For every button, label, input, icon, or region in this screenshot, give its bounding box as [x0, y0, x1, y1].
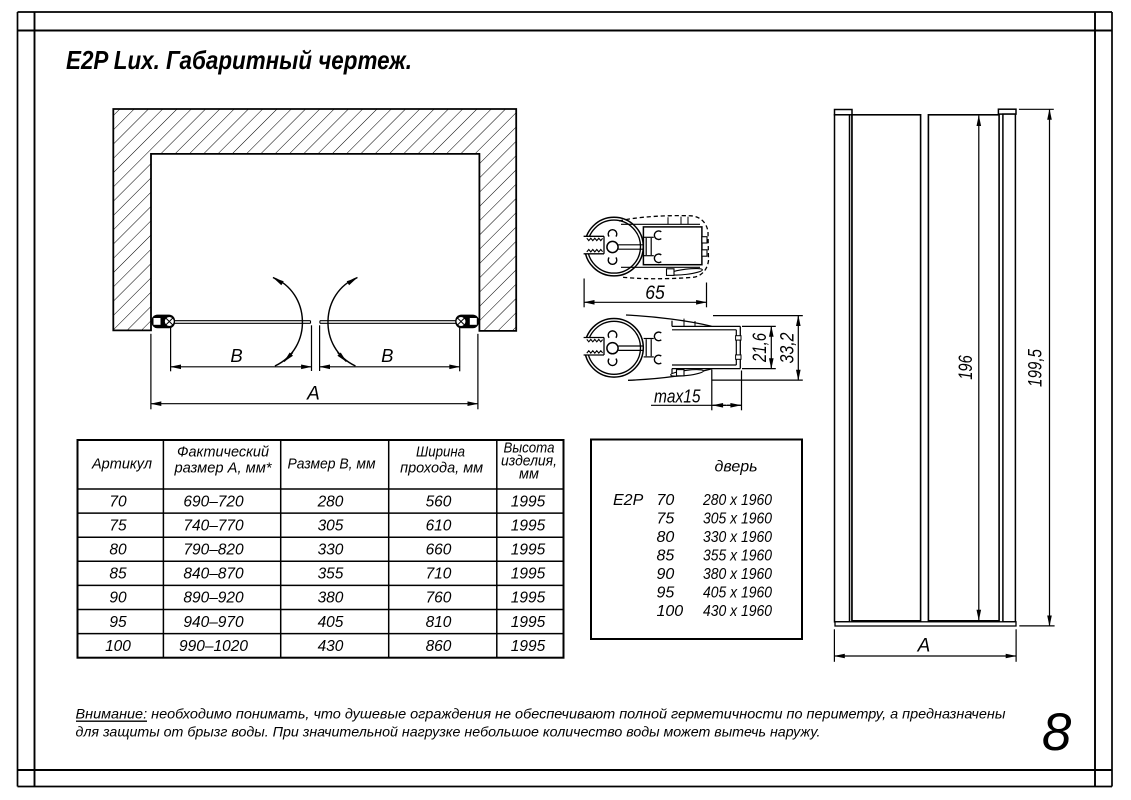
svg-text:890–920: 890–920	[183, 590, 244, 607]
svg-text:196: 196	[956, 355, 977, 380]
svg-text:405: 405	[318, 614, 344, 631]
svg-text:760: 760	[426, 590, 452, 607]
svg-text:90: 90	[657, 566, 675, 583]
svg-text:660: 660	[426, 542, 452, 559]
svg-text:380 x 1960: 380 x 1960	[703, 566, 772, 583]
svg-text:1995: 1995	[511, 493, 546, 510]
svg-text:690–720: 690–720	[183, 493, 244, 510]
svg-text:80: 80	[657, 529, 675, 546]
svg-text:405 x 1960: 405 x 1960	[703, 585, 772, 602]
svg-text:430 x 1960: 430 x 1960	[703, 603, 772, 620]
svg-text:560: 560	[426, 493, 452, 510]
svg-text:100: 100	[105, 638, 131, 655]
svg-text:1995: 1995	[511, 566, 546, 583]
svg-text:355: 355	[318, 566, 344, 583]
svg-text:21,6: 21,6	[750, 333, 771, 363]
svg-text:B: B	[381, 345, 393, 366]
svg-text:305 x 1960: 305 x 1960	[703, 511, 772, 528]
svg-text:прохода, мм: прохода, мм	[400, 459, 483, 476]
svg-text:Внимание: необходимо понимать,: Внимание: необходимо понимать, что душев…	[76, 706, 1007, 722]
svg-text:33,2: 33,2	[778, 332, 799, 363]
svg-text:1995: 1995	[511, 614, 546, 631]
svg-text:дверь: дверь	[714, 459, 757, 476]
svg-text:75: 75	[657, 511, 675, 528]
svg-text:Ширина: Ширина	[416, 444, 465, 461]
svg-text:85: 85	[657, 548, 675, 565]
svg-text:для защиты от брызг воды. При: для защиты от брызг воды. При значительн…	[76, 724, 821, 740]
svg-text:70: 70	[657, 492, 675, 509]
svg-text:1995: 1995	[511, 517, 546, 534]
svg-text:95: 95	[109, 614, 127, 631]
svg-text:85: 85	[109, 566, 127, 583]
svg-text:330 x 1960: 330 x 1960	[703, 529, 772, 546]
svg-text:1995: 1995	[511, 542, 546, 559]
svg-text:280 x 1960: 280 x 1960	[702, 492, 772, 509]
svg-text:1995: 1995	[511, 638, 546, 655]
svg-text:355 x 1960: 355 x 1960	[703, 548, 772, 565]
svg-text:E2P: E2P	[613, 492, 644, 509]
svg-text:610: 610	[426, 517, 452, 534]
svg-text:Артикул: Артикул	[91, 456, 152, 473]
svg-text:Фактический: Фактический	[177, 444, 270, 461]
svg-text:Размер В, мм: Размер В, мм	[288, 456, 376, 473]
svg-text:95: 95	[657, 585, 675, 602]
svg-text:380: 380	[318, 590, 344, 607]
svg-text:940–970: 940–970	[183, 614, 244, 631]
svg-text:max15: max15	[654, 386, 701, 406]
svg-text:710: 710	[426, 566, 452, 583]
svg-text:430: 430	[318, 638, 344, 655]
svg-text:75: 75	[109, 517, 127, 534]
svg-text:65: 65	[645, 283, 665, 304]
svg-text:280: 280	[317, 493, 344, 510]
svg-text:790–820: 790–820	[183, 542, 244, 559]
svg-text:199,5: 199,5	[1026, 349, 1047, 387]
svg-text:A: A	[917, 635, 931, 656]
svg-text:100: 100	[657, 603, 684, 620]
svg-text:810: 810	[426, 614, 452, 631]
svg-text:840–870: 840–870	[183, 566, 244, 583]
svg-text:A: A	[306, 383, 320, 404]
svg-text:B: B	[230, 345, 242, 366]
svg-text:330: 330	[318, 542, 344, 559]
svg-text:90: 90	[109, 590, 127, 607]
svg-text:1995: 1995	[511, 590, 546, 607]
svg-text:990–1020: 990–1020	[179, 638, 248, 655]
svg-text:мм: мм	[519, 466, 539, 482]
svg-text:305: 305	[318, 517, 344, 534]
svg-text:740–770: 740–770	[183, 517, 244, 534]
svg-text:860: 860	[426, 638, 452, 655]
svg-text:размер А, мм*: размер А, мм*	[174, 459, 273, 476]
svg-text:80: 80	[109, 542, 127, 559]
svg-text:70: 70	[109, 493, 127, 510]
svg-text:E2P Lux. Габаритный чертеж.: E2P Lux. Габаритный чертеж.	[66, 45, 412, 75]
svg-text:8: 8	[1042, 703, 1072, 762]
